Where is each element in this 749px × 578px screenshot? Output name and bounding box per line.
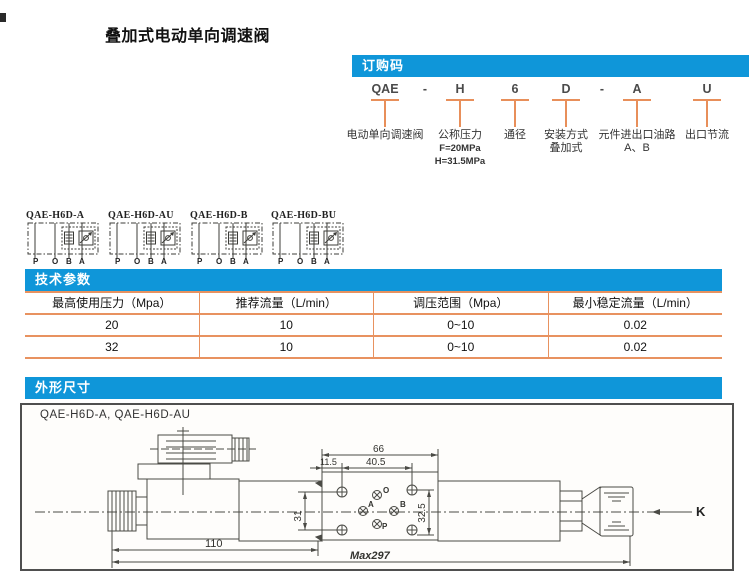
dim-110: 110 bbox=[205, 538, 223, 550]
hydraulic-symbol: P O B A bbox=[26, 221, 104, 266]
code-label-outlet-throttle: 出口节流 bbox=[647, 128, 749, 142]
code-sublabel-f: F=20MPa bbox=[400, 142, 520, 155]
port-letter-o: O bbox=[134, 257, 140, 266]
port-letter-o: O bbox=[52, 257, 58, 266]
dim-11-5: 11.5 bbox=[320, 457, 337, 467]
port-letter-a: A bbox=[161, 257, 167, 266]
cell-value: 10 bbox=[199, 337, 374, 357]
cell-value: 20 bbox=[25, 315, 199, 335]
connector-stem bbox=[514, 99, 516, 127]
table-header-row: 最高使用压力（Mpa） 推荐流量（L/min） 调压范围（Mpa） 最小稳定流量… bbox=[25, 291, 722, 313]
port-letter-b: B bbox=[66, 257, 72, 266]
port-letter-a: A bbox=[79, 257, 85, 266]
dim-31: 31 bbox=[293, 510, 304, 522]
schematic-figure-b: QAE-H6D-B P O B A bbox=[190, 210, 270, 271]
port-letter-p: P bbox=[197, 257, 203, 266]
port-letter-b: B bbox=[230, 257, 236, 266]
view-label-k: K bbox=[696, 504, 706, 519]
cell-value: 0~10 bbox=[373, 337, 548, 357]
outline-section-header: 外形尺寸 bbox=[25, 377, 722, 399]
col-header-pressure-range: 调压范围（Mpa） bbox=[373, 293, 548, 313]
schematic-figure-au: QAE-H6D-AU P O B A bbox=[108, 210, 188, 271]
table-row: 32 10 0~10 0.02 bbox=[25, 335, 722, 359]
connector-stem bbox=[384, 99, 386, 127]
schematic-label: QAE-H6D-A bbox=[26, 210, 106, 221]
schematic-label: QAE-H6D-BU bbox=[271, 210, 351, 221]
port-letter-p: P bbox=[278, 257, 284, 266]
code-sublabel-h: H=31.5MPa bbox=[400, 155, 520, 168]
cell-value: 0~10 bbox=[373, 315, 548, 335]
col-header-max-pressure: 最高使用压力（Mpa） bbox=[25, 293, 199, 313]
code-label-text: 出口节流 bbox=[647, 128, 749, 142]
code-part-a: A bbox=[607, 82, 667, 96]
tech-params-table: 最高使用压力（Mpa） 推荐流量（L/min） 调压范围（Mpa） 最小稳定流量… bbox=[25, 291, 722, 359]
connector-stem bbox=[706, 99, 708, 127]
tech-params-section-header: 技术参数 bbox=[25, 269, 722, 291]
schematic-figure-bu: QAE-H6D-BU P O B A bbox=[271, 210, 351, 271]
port-letter-p: P bbox=[115, 257, 121, 266]
code-part-h: H bbox=[430, 82, 490, 96]
port-letter-a: A bbox=[243, 257, 249, 266]
dim-max297: Max297 bbox=[350, 550, 391, 562]
port-letter-b: B bbox=[148, 257, 154, 266]
connector-stem bbox=[459, 99, 461, 127]
cell-value: 0.02 bbox=[548, 315, 723, 335]
schematic-label: QAE-H6D-AU bbox=[108, 210, 188, 221]
dim-40-5: 40.5 bbox=[366, 457, 386, 468]
table-row: 20 10 0~10 0.02 bbox=[25, 313, 722, 335]
scan-artifact bbox=[0, 13, 6, 22]
port-letter-o: O bbox=[216, 257, 222, 266]
connector-stem bbox=[636, 99, 638, 127]
port-letter-a: A bbox=[324, 257, 330, 266]
schematic-figure-a: QAE-H6D-A P O B A bbox=[26, 210, 106, 271]
port-letter-b: B bbox=[311, 257, 317, 266]
drawing-port-o: O bbox=[383, 486, 389, 495]
drawing-port-a: A bbox=[368, 500, 374, 509]
port-letter-o: O bbox=[297, 257, 303, 266]
port-letter-p: P bbox=[33, 257, 39, 266]
drawing-port-p: P bbox=[382, 522, 388, 531]
connector-stem bbox=[565, 99, 567, 127]
schematic-label: QAE-H6D-B bbox=[190, 210, 270, 221]
cell-value: 0.02 bbox=[548, 337, 723, 357]
code-sublabel-ab: A、B bbox=[577, 142, 697, 155]
catalog-page: 叠加式电动单向调速阀 订购码 QAE - H 6 D - A U 电动单向调速阀… bbox=[0, 0, 749, 578]
hydraulic-symbol: P O B A bbox=[108, 221, 186, 266]
dim-66: 66 bbox=[373, 444, 385, 455]
hydraulic-symbol: P O B A bbox=[271, 221, 349, 266]
order-code-section-header: 订购码 bbox=[352, 55, 749, 77]
code-part-u: U bbox=[677, 82, 737, 96]
dim-32-5: 32.5 bbox=[417, 503, 428, 523]
drawing-port-b: B bbox=[400, 500, 406, 509]
hydraulic-symbol: P O B A bbox=[190, 221, 268, 266]
col-header-min-stable-flow: 最小稳定流量（L/min） bbox=[548, 293, 723, 313]
col-header-flow: 推荐流量（L/min） bbox=[199, 293, 374, 313]
outline-dimension-drawing: 66 40.5 11.5 31 32.5 110 Max297 K O A B … bbox=[20, 403, 734, 571]
page-title: 叠加式电动单向调速阀 bbox=[105, 22, 270, 46]
cell-value: 10 bbox=[199, 315, 374, 335]
cell-value: 32 bbox=[25, 337, 199, 357]
